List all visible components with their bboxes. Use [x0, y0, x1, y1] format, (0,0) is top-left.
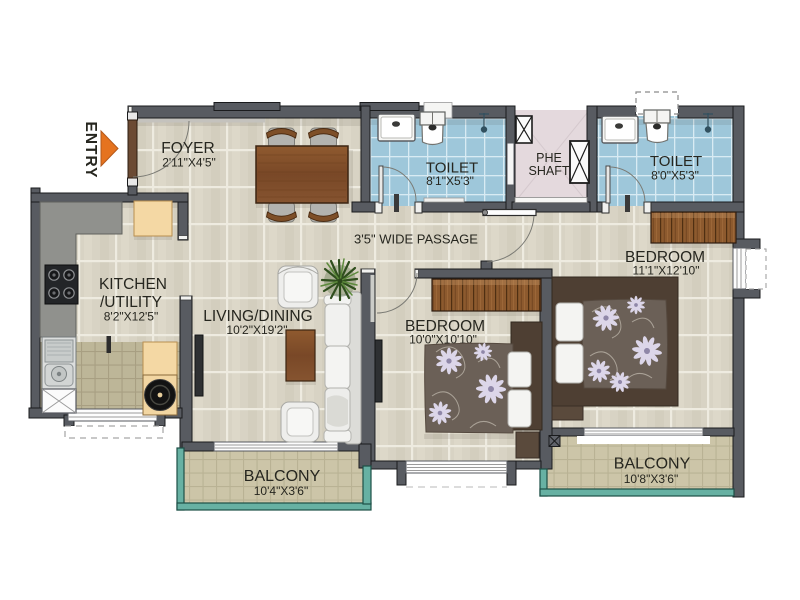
svg-text:KITCHEN: KITCHEN	[99, 276, 167, 293]
svg-text:BALCONY: BALCONY	[614, 456, 691, 473]
svg-text:SHAFT: SHAFT	[529, 164, 570, 178]
svg-text:BALCONY: BALCONY	[244, 468, 321, 485]
svg-text:8'2"X12'5": 8'2"X12'5"	[104, 310, 158, 324]
svg-text:FOYER: FOYER	[161, 140, 214, 157]
svg-text:11'1"X12'10": 11'1"X12'10"	[633, 264, 700, 278]
svg-text:/UTILITY: /UTILITY	[100, 294, 162, 311]
svg-text:PHE: PHE	[536, 151, 562, 165]
svg-text:10'8"X3'6": 10'8"X3'6"	[624, 472, 678, 486]
svg-text:ENTRY: ENTRY	[82, 122, 99, 179]
svg-text:3'5" WIDE PASSAGE: 3'5" WIDE PASSAGE	[354, 232, 478, 247]
svg-text:TOILET: TOILET	[650, 153, 702, 170]
svg-text:10'2"X19'2": 10'2"X19'2"	[226, 323, 287, 337]
svg-text:10'4"X3'6": 10'4"X3'6"	[254, 484, 308, 498]
svg-text:8'0"X5'3": 8'0"X5'3"	[651, 169, 699, 183]
svg-text:8'1"X5'3": 8'1"X5'3"	[426, 174, 474, 188]
svg-text:2'11"X4'5": 2'11"X4'5"	[162, 156, 216, 170]
